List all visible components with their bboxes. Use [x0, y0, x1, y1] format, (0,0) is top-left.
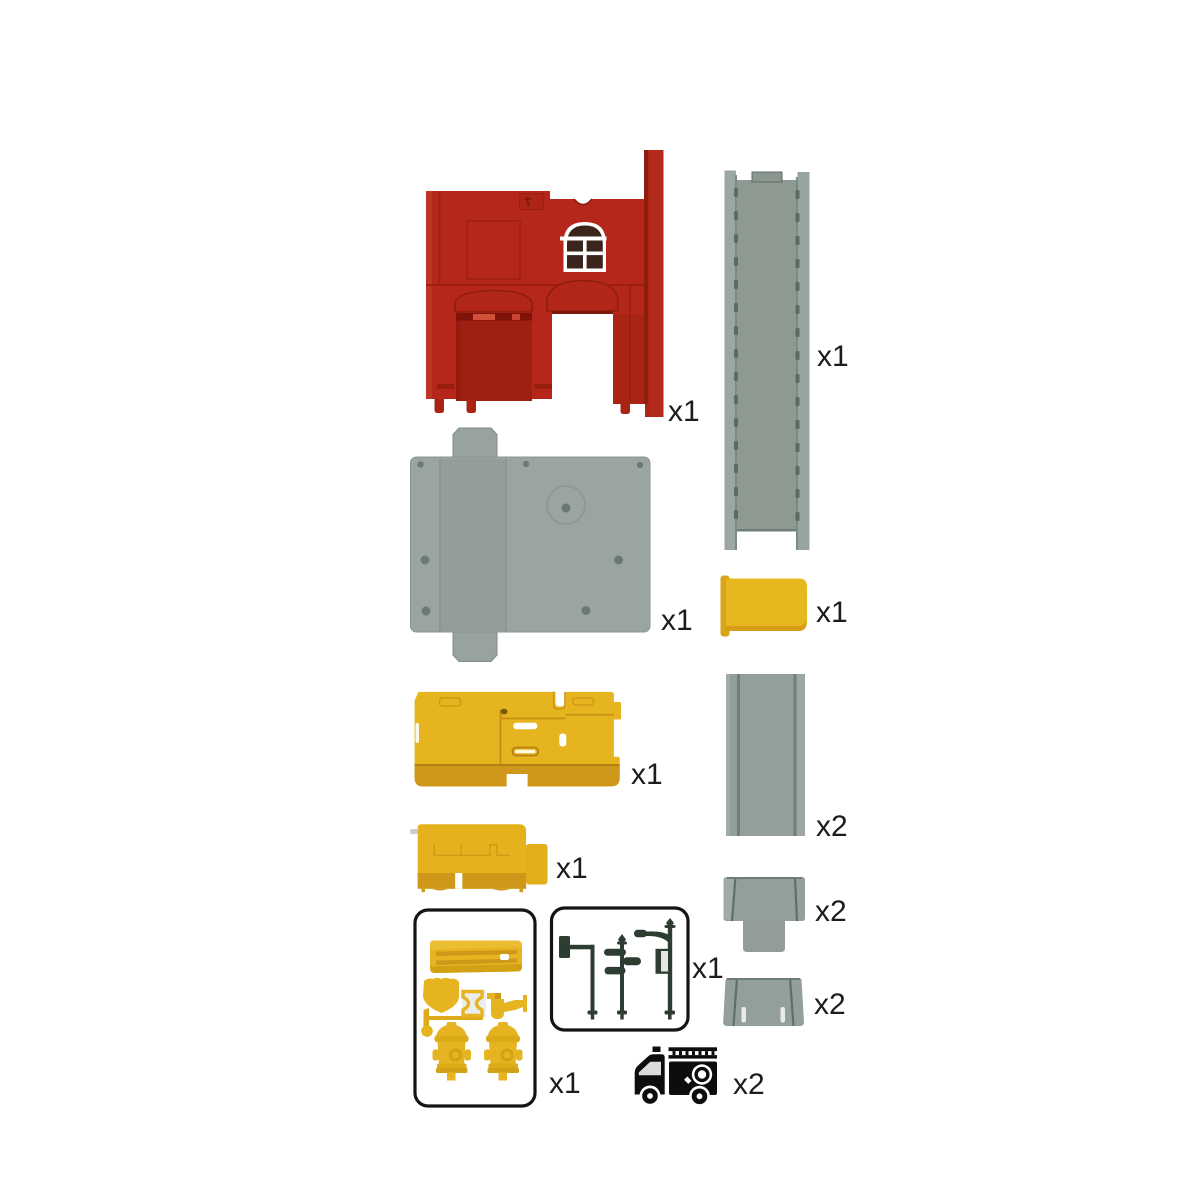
svg-text:x1: x1	[549, 1067, 581, 1100]
svg-text:x1: x1	[692, 952, 724, 985]
svg-text:x2: x2	[815, 895, 847, 928]
svg-text:x2: x2	[816, 810, 848, 843]
svg-text:x1: x1	[661, 604, 693, 637]
svg-text:x1: x1	[631, 758, 663, 791]
svg-text:x2: x2	[814, 988, 846, 1021]
svg-text:x2: x2	[733, 1068, 765, 1101]
svg-text:x1: x1	[816, 596, 848, 629]
svg-text:x1: x1	[668, 395, 700, 428]
svg-text:x1: x1	[556, 852, 588, 885]
svg-text:x1: x1	[817, 340, 849, 373]
